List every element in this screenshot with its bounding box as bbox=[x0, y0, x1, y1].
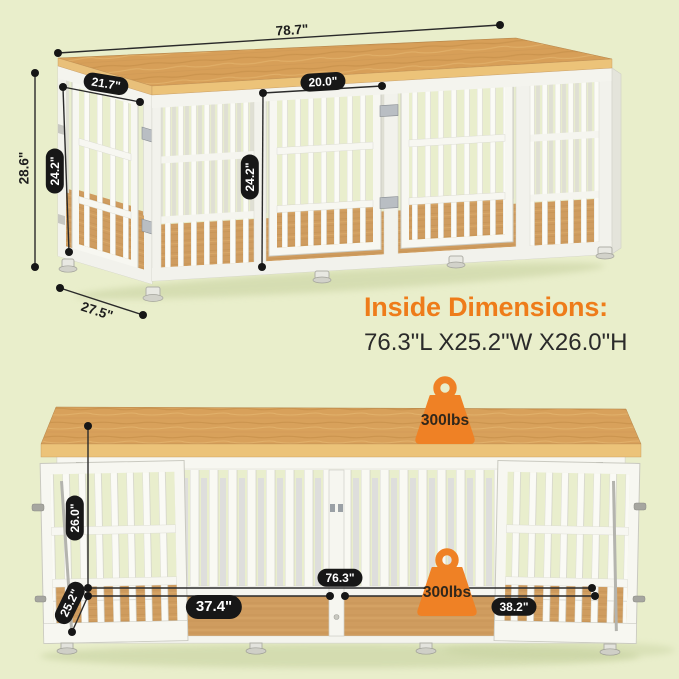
wood-tabletop-front bbox=[41, 407, 641, 457]
front-view bbox=[32, 380, 675, 668]
front-panel bbox=[152, 68, 612, 281]
hinge-icon bbox=[380, 197, 398, 209]
front-door bbox=[269, 86, 381, 257]
foot bbox=[143, 287, 163, 302]
dim-overall-height-label: 28.6" bbox=[17, 152, 32, 185]
dim-right-room-width-label: 38.2" bbox=[491, 598, 536, 616]
dim-side-door-height-label: 24.2" bbox=[46, 148, 64, 193]
dim-front-door-height-label: 24.2" bbox=[241, 154, 259, 199]
foot bbox=[313, 271, 331, 283]
foot bbox=[57, 643, 77, 654]
dim-inner-height-label: 26.0" bbox=[66, 495, 84, 540]
right-door bbox=[494, 461, 640, 644]
tabletop-capacity-label: 300lbs bbox=[421, 412, 469, 430]
isometric-view bbox=[31, 21, 621, 319]
hinge-icon bbox=[380, 105, 398, 117]
inside-dimensions-heading: Inside Dimensions: bbox=[364, 292, 608, 323]
product-dimension-diagram: 78.7" 28.6" 27.5" 21.7" 20.0" 24.2" 24.2… bbox=[0, 0, 679, 679]
dim-left-room-width-label: 37.4" bbox=[186, 595, 242, 619]
dim-overall-width-label: 78.7" bbox=[275, 21, 309, 38]
inside-dimensions-value: 76.3"L X25.2"W X26.0"H bbox=[364, 329, 627, 357]
center-divider bbox=[329, 470, 344, 636]
interior-capacity-label: 300lbs bbox=[423, 584, 471, 602]
foot bbox=[596, 247, 614, 259]
dim-door-width-label: 20.0" bbox=[300, 71, 346, 92]
front-door-right bbox=[401, 78, 513, 249]
foot bbox=[59, 259, 77, 272]
dim-inner-width-label: 76.3" bbox=[317, 569, 362, 587]
foot bbox=[447, 256, 465, 268]
